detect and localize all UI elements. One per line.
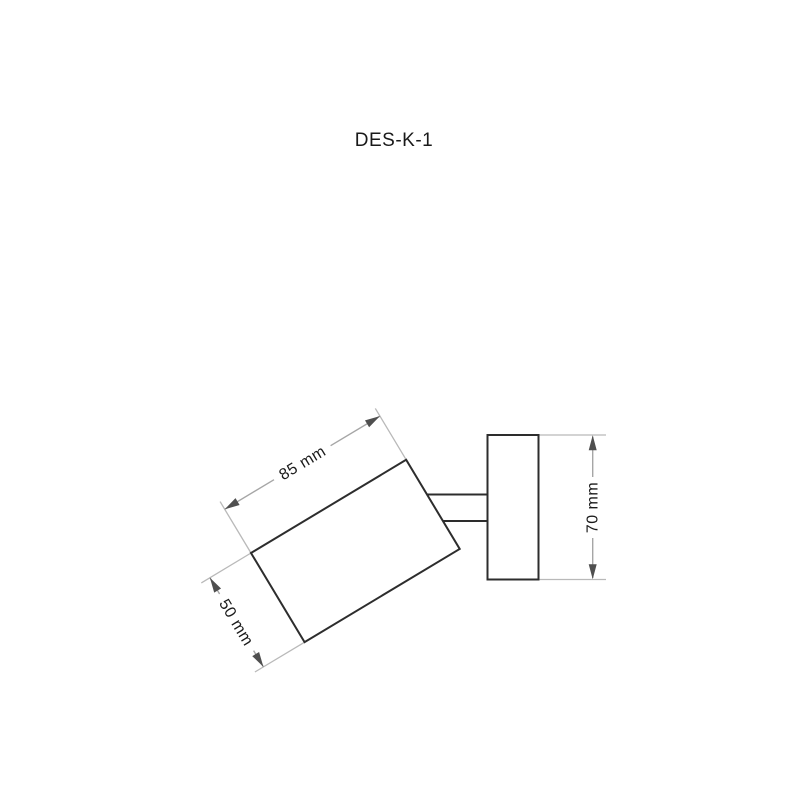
dimension-label-bracket-height: 70 mm [585,482,602,533]
extension-line [255,642,305,672]
dimension-70mm: 70 mm [539,435,607,580]
extension-line [375,408,406,459]
dimension-label-head-length: 85 mm [276,443,329,484]
wall-bracket-outline [488,435,539,580]
product-dimension-drawing: 85 mm 50 mm 70 mm [0,0,800,800]
dimension-label-head-diameter: 50 mm [215,596,256,649]
arrowhead-icon [589,435,597,450]
drawing-page: DES-K-1 85 mm 50 mm [0,0,800,800]
extension-line [201,553,251,583]
arrowhead-icon [589,564,597,579]
lamp-head-outline [251,460,460,642]
